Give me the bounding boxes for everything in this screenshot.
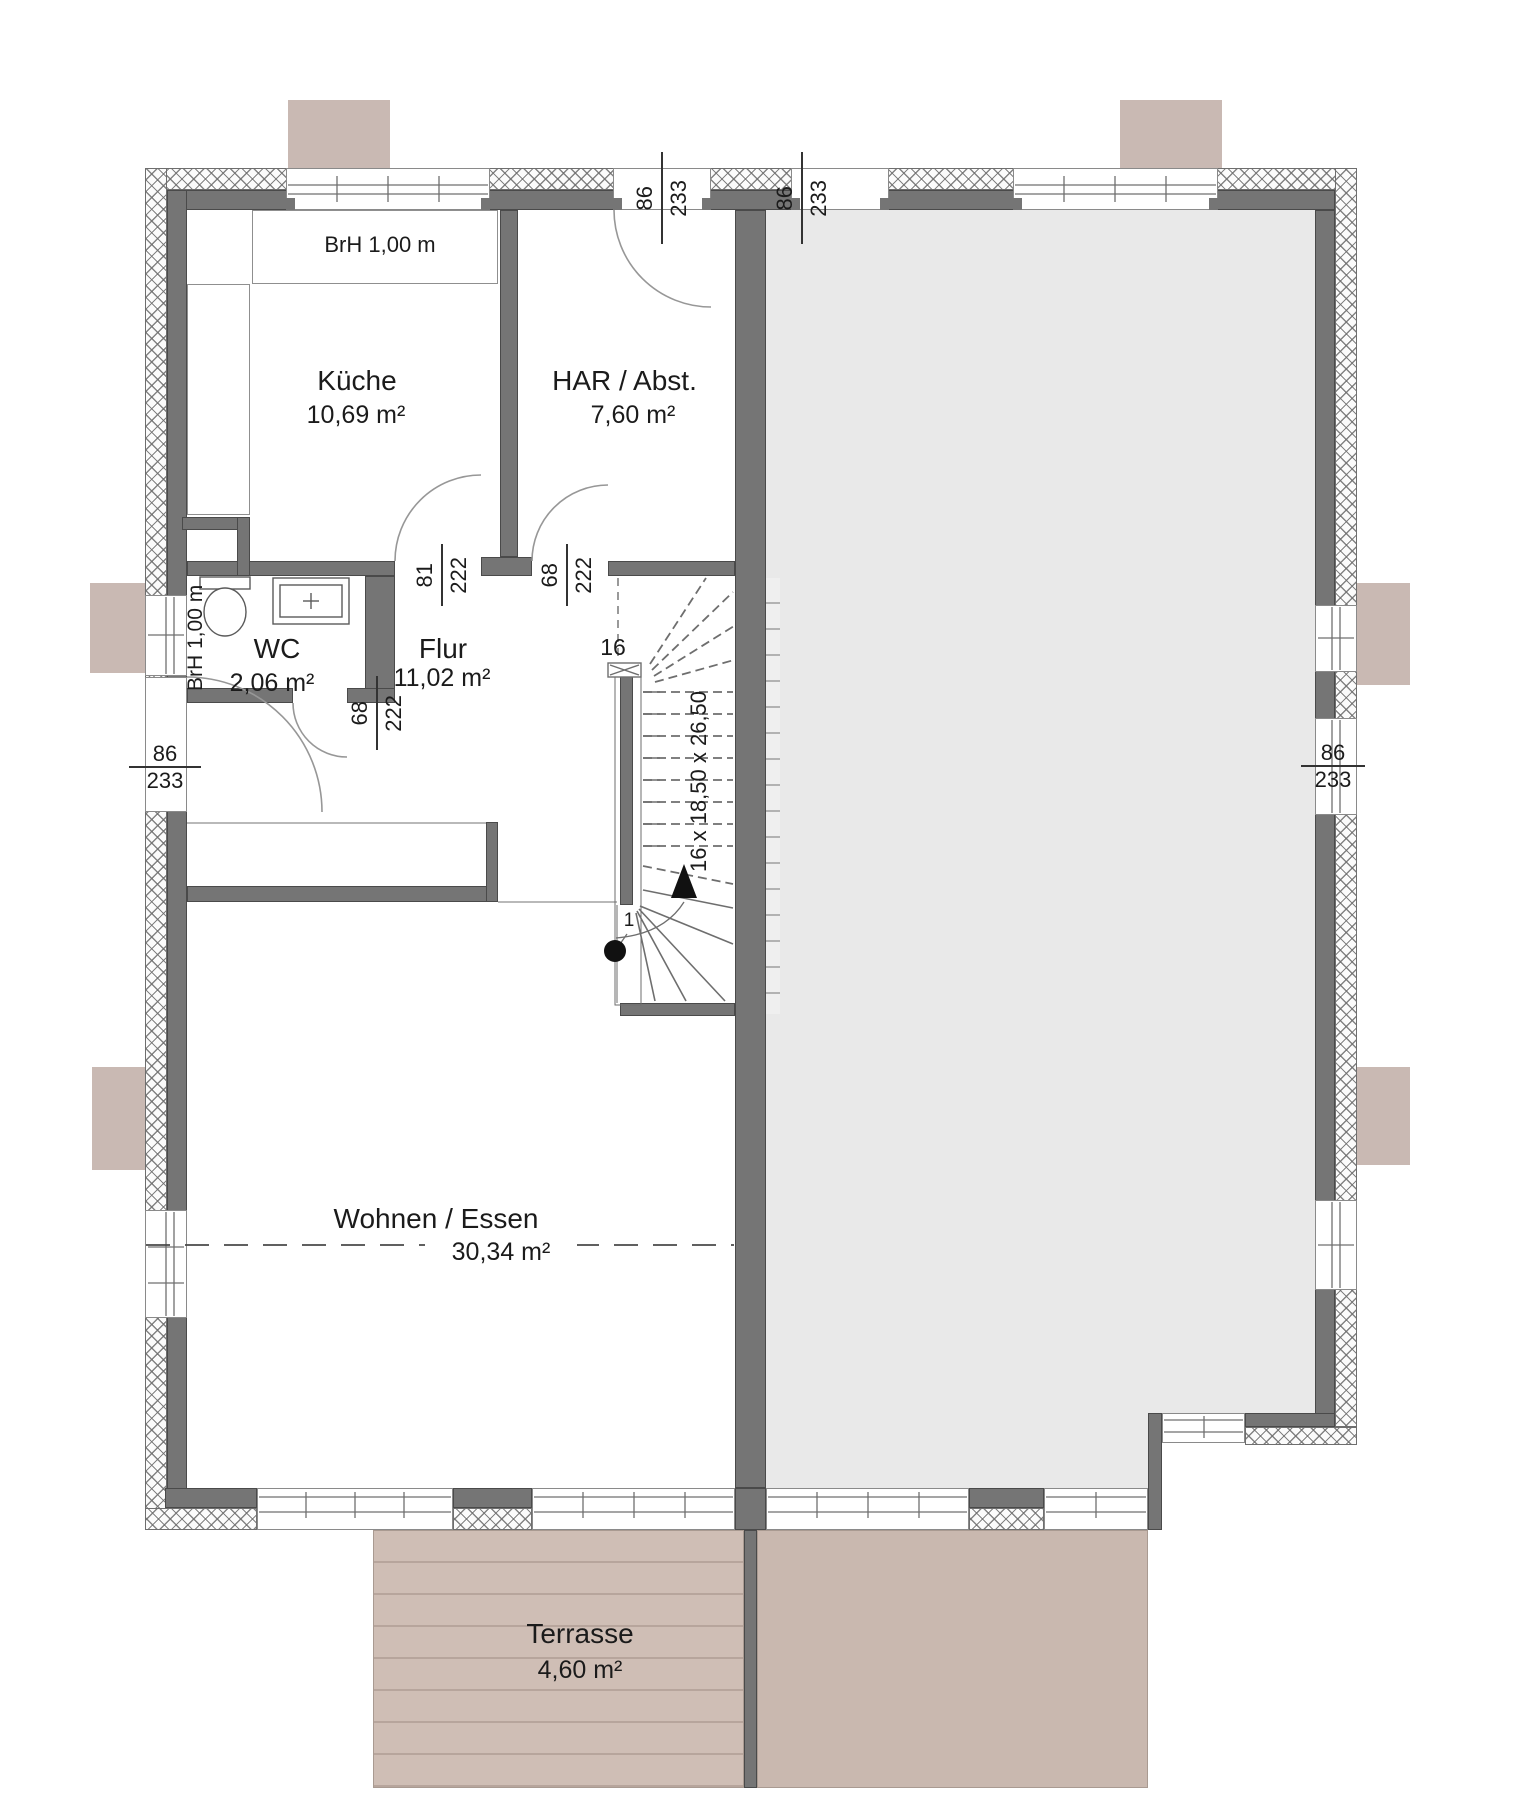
wall-hatch-bottom-east [1245, 1427, 1357, 1445]
jamb-nub [1209, 198, 1218, 210]
room-label-kueche: Küche [267, 365, 447, 397]
room-label-har: HAR / Abst. [527, 365, 722, 397]
room-area-har: 7,60 m² [538, 401, 728, 430]
stair-step-1: 1 [620, 910, 638, 932]
stair-step-16: 16 [597, 634, 629, 661]
glazing-wohnen-2 [532, 1488, 735, 1530]
dim-entry-door: 86233 [129, 741, 201, 793]
dim-right-window: 86233 [1301, 740, 1365, 792]
room-area-kueche: 10,69 m² [266, 401, 446, 430]
dim-top-door-right: 86233 [772, 148, 832, 248]
wall-hatch-bottom-2 [453, 1508, 532, 1530]
glazing-wohnen-1 [257, 1488, 453, 1530]
window-neighbor-top [1013, 168, 1218, 210]
party-wall [735, 210, 766, 1488]
window-kueche [286, 168, 490, 210]
room-label-wc: WC [227, 633, 327, 665]
jamb-nub [481, 198, 490, 210]
jamb-nub [613, 198, 622, 210]
jamb-nub [702, 198, 711, 210]
jamb-nub [880, 198, 889, 210]
wall-entry-partition-stub [486, 822, 498, 902]
wall-bottom-step [1148, 1413, 1162, 1530]
neighbor-unit-fill-east [1148, 210, 1315, 1413]
neighbor-terrace [757, 1530, 1148, 1788]
jamb-nub [286, 198, 295, 210]
glazing-neighbor-2 [1044, 1488, 1148, 1530]
wall-hatch-bottom-1 [145, 1508, 257, 1530]
wall-duct-right [237, 517, 250, 576]
attachment-block-top-left [288, 100, 390, 168]
wall-bottom-corner-left [165, 1488, 257, 1508]
window-neighbor-right-1 [1315, 605, 1357, 672]
glazing-neighbor-east [1162, 1413, 1245, 1443]
stair-walkline-start [604, 940, 626, 962]
room-area-wc: 2,06 m² [182, 669, 362, 698]
brh-note-top: BrH 1,00 m [295, 232, 465, 258]
wall-bottom-corner-east [1245, 1413, 1335, 1427]
wall-stairs-bottom [620, 1003, 735, 1016]
wall-kueche-har-foot [481, 557, 532, 576]
attachment-block-right-lower [1357, 1067, 1410, 1165]
window-neighbor-right-3 [1315, 1200, 1357, 1290]
party-wall-bottom [735, 1488, 766, 1530]
floor-plan: Küche 10,69 m² HAR / Abst. 7,60 m² WC 2,… [0, 0, 1518, 1808]
wall-bottom-pier-1 [453, 1488, 532, 1508]
room-area-wohnen: 30,34 m² [425, 1238, 577, 1267]
attachment-block-top-right [1120, 100, 1222, 168]
room-label-flur: Flur [353, 633, 533, 665]
wall-stairs-top [608, 561, 735, 576]
dim-wc-door: 68222 [347, 672, 407, 754]
stair-formula: 16 x 18,50 x 26,50 [686, 616, 712, 946]
kitchen-counter-left [187, 284, 250, 515]
neighbor-unit-fill [766, 210, 1148, 1488]
wall-hatch-bottom-4 [969, 1508, 1044, 1530]
neighbor-stair-hint [766, 578, 780, 1014]
brh-note-left: BrH 1,00 m [184, 582, 208, 694]
wall-kueche-har [500, 210, 518, 557]
attachment-block-left-upper [90, 583, 145, 673]
wall-entry-partition [187, 886, 498, 902]
room-label-terrasse: Terrasse [470, 1618, 690, 1650]
attachment-block-right-upper [1357, 583, 1410, 685]
wall-wc-top [187, 561, 395, 576]
party-wall-terrace-strip [744, 1530, 757, 1788]
window-wc [145, 595, 187, 676]
wall-hatch-left [145, 168, 167, 1530]
window-wohnen-left [145, 1210, 187, 1318]
room-label-wohnen: Wohnen / Essen [296, 1203, 576, 1235]
wall-stairs-spine [620, 675, 633, 905]
room-area-terrasse: 4,60 m² [470, 1656, 690, 1685]
dim-kueche-door: 81222 [412, 540, 472, 610]
wc-basin [273, 578, 349, 624]
dim-har-door: 68222 [537, 540, 597, 610]
glazing-neighbor-1 [766, 1488, 969, 1530]
dim-top-door-left: 86233 [632, 148, 692, 248]
attachment-block-left-lower [92, 1067, 145, 1170]
jamb-nub [1013, 198, 1022, 210]
wall-bottom-pier-2 [969, 1488, 1044, 1508]
